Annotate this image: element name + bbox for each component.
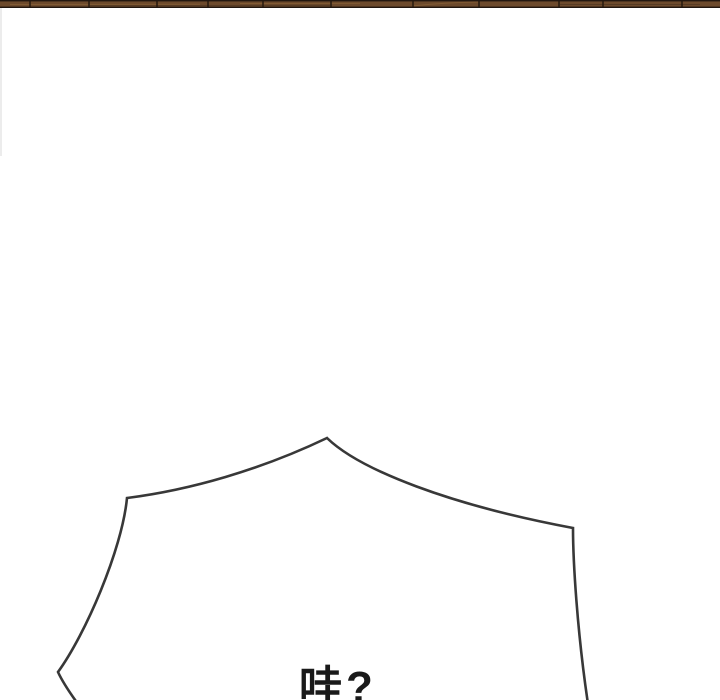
- comic-page: 哇?: [0, 0, 720, 700]
- speech-bubble-text: 哇?: [299, 664, 459, 700]
- speech-bubble-outline: [58, 438, 588, 700]
- speech-bubble: [0, 0, 720, 700]
